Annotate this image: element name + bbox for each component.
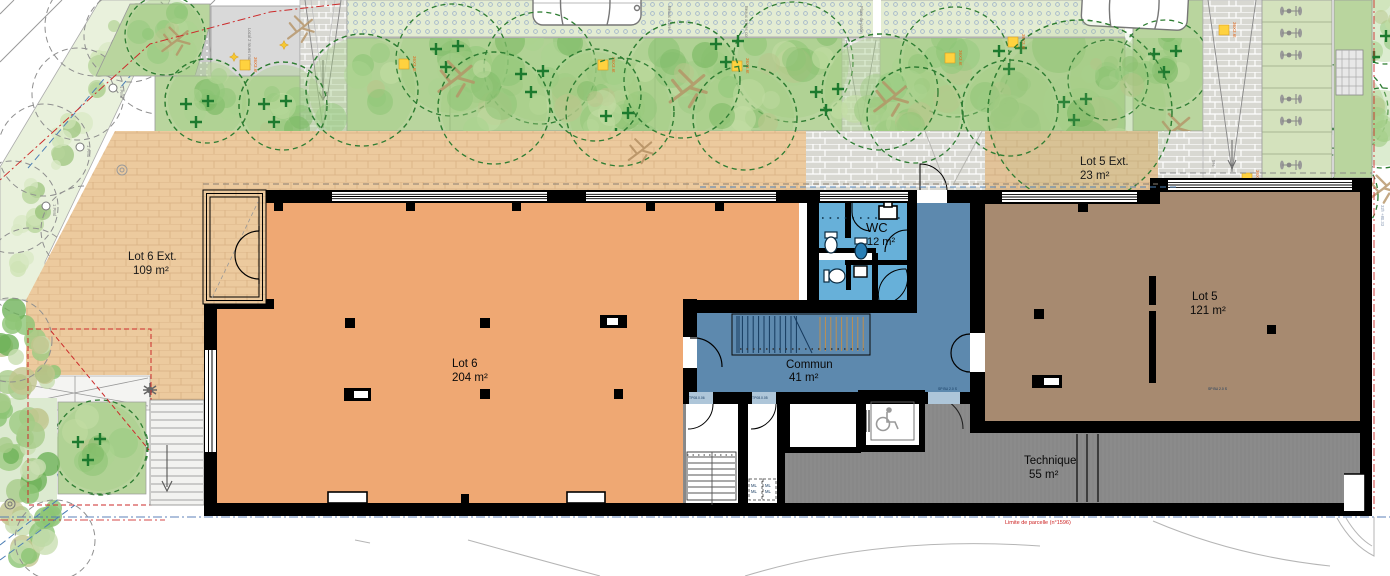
svg-text:36X3.6t: 36X3.6t <box>958 50 963 66</box>
svg-text:TP08.0.05: TP08.0.05 <box>752 396 768 400</box>
svg-text:Lot 5: Lot 5 <box>1192 291 1218 303</box>
svg-text:5%: 5% <box>1211 160 1216 167</box>
svg-text:121 m²: 121 m² <box>1190 305 1226 317</box>
svg-text:109 m²: 109 m² <box>133 265 169 277</box>
svg-text:SP BU 2.0 S: SP BU 2.0 S <box>1208 387 1228 391</box>
svg-text:36X3.6t: 36X3.6t <box>1232 22 1237 38</box>
svg-text:32h +80.33: 32h +80.33 <box>1380 205 1385 227</box>
svg-text:ML: ML <box>765 483 771 488</box>
svg-text:36X3.6t: 36X3.6t <box>253 57 258 73</box>
svg-text:55 m²: 55 m² <box>1029 469 1059 481</box>
svg-text:1 PMd: 1 PMd <box>52 204 57 217</box>
svg-text:Limite de parcelle (n°1596): Limite de parcelle (n°1596) <box>1005 520 1071 526</box>
svg-text:Technique: Technique <box>1024 455 1076 467</box>
svg-text:41 m²: 41 m² <box>789 372 819 384</box>
svg-text:ML: ML <box>751 489 757 494</box>
svg-text:1 PMd: 1 PMd <box>119 86 124 99</box>
svg-text:23 m²: 23 m² <box>1080 170 1110 182</box>
svg-text:ML: ML <box>751 483 757 488</box>
svg-text:Lot 6 Ext.: Lot 6 Ext. <box>128 251 177 263</box>
svg-text:WC: WC <box>866 220 888 235</box>
svg-text:1 PMd: 1 PMd <box>86 145 91 158</box>
svg-text:TP08.0.06: TP08.0.06 <box>689 396 705 400</box>
svg-text:ML: ML <box>765 489 771 494</box>
svg-text:12 m²: 12 m² <box>867 236 895 248</box>
svg-text:Lot 5 Ext.: Lot 5 Ext. <box>1080 156 1129 168</box>
svg-text:SP BU 2.0 S: SP BU 2.0 S <box>938 387 958 391</box>
svg-text:36X3.6t: 36X3.6t <box>611 57 616 73</box>
svg-text:Place de jardin: Place de jardin <box>859 6 864 34</box>
svg-text:36X3.6t: 36X3.6t <box>412 56 417 72</box>
svg-text:204 m²: 204 m² <box>452 372 488 384</box>
svg-text:Commun: Commun <box>786 359 833 371</box>
svg-text:Beaux arbres: Beaux arbres <box>667 6 672 31</box>
svg-text:Lot 6: Lot 6 <box>452 358 478 370</box>
